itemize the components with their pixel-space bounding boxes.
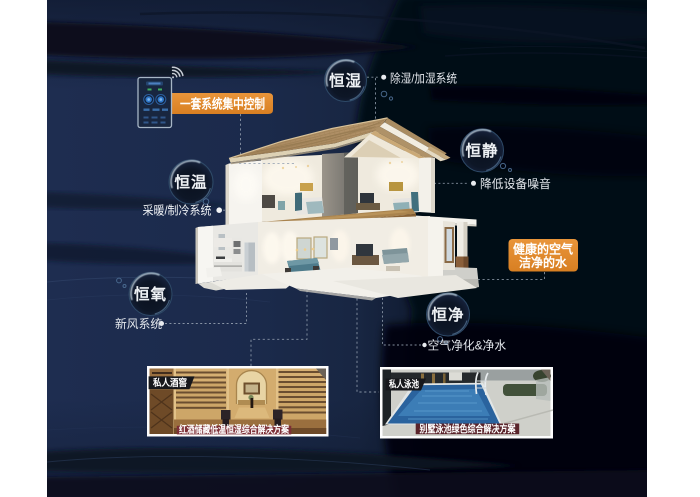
svg-text:恒氧: 恒氧 xyxy=(134,285,167,304)
svg-text:除湿/加湿系统: 除湿/加湿系统 xyxy=(390,72,457,86)
svg-text:降低设备噪音: 降低设备噪音 xyxy=(480,177,551,191)
svg-text:采暖/制冷系统: 采暖/制冷系统 xyxy=(143,204,212,218)
svg-text:恒温: 恒温 xyxy=(174,173,207,192)
svg-text:红酒储藏低温恒湿综合解决方案: 红酒储藏低温恒湿综合解决方案 xyxy=(179,423,290,436)
svg-text:私人酒窖: 私人酒窖 xyxy=(152,377,187,389)
svg-text:私人泳池: 私人泳池 xyxy=(388,379,419,391)
svg-text:恒净: 恒净 xyxy=(431,305,464,324)
svg-text:洁净的水: 洁净的水 xyxy=(519,255,568,270)
svg-text:恒静: 恒静 xyxy=(465,141,498,160)
svg-text:健康的空气: 健康的空气 xyxy=(513,242,574,257)
svg-text:恒湿: 恒湿 xyxy=(329,71,362,90)
svg-text:别墅泳池绿色综合解决方案: 别墅泳池绿色综合解决方案 xyxy=(419,422,516,435)
svg-text:新风系统: 新风系统 xyxy=(115,317,162,331)
svg-text:一套系统集中控制: 一套系统集中控制 xyxy=(180,96,265,111)
svg-text:空气净化&净水: 空气净化&净水 xyxy=(428,339,507,353)
